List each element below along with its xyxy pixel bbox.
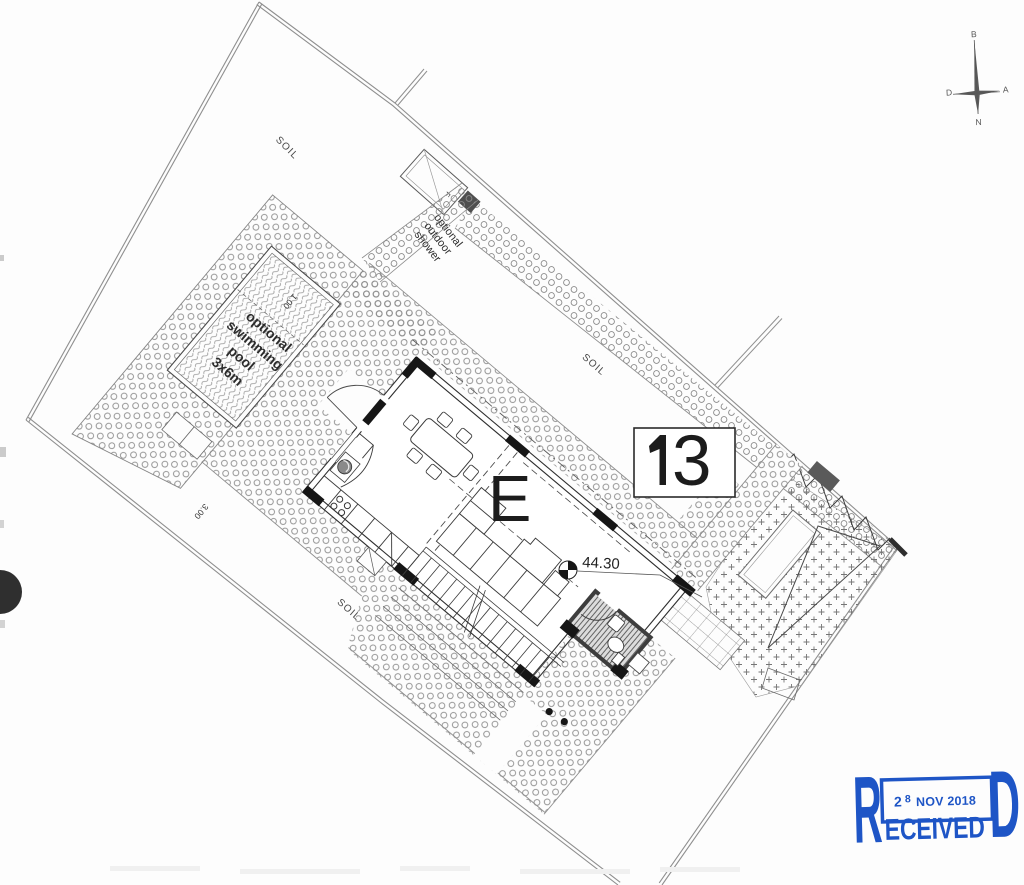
svg-text:R: R <box>852 757 884 863</box>
svg-text:N: N <box>975 117 982 127</box>
svg-text:ECEIVED: ECEIVED <box>884 810 985 846</box>
svg-text:NOV 2018: NOV 2018 <box>916 794 976 810</box>
svg-text:E: E <box>488 462 531 535</box>
svg-text:44.30: 44.30 <box>582 554 620 573</box>
svg-text:D: D <box>988 750 1022 858</box>
svg-text:B: B <box>971 29 978 39</box>
svg-text:2: 2 <box>894 793 902 809</box>
svg-text:3: 3 <box>672 422 712 501</box>
svg-text:D: D <box>946 87 953 97</box>
svg-text:A: A <box>1003 84 1010 94</box>
svg-text:8: 8 <box>905 793 911 805</box>
